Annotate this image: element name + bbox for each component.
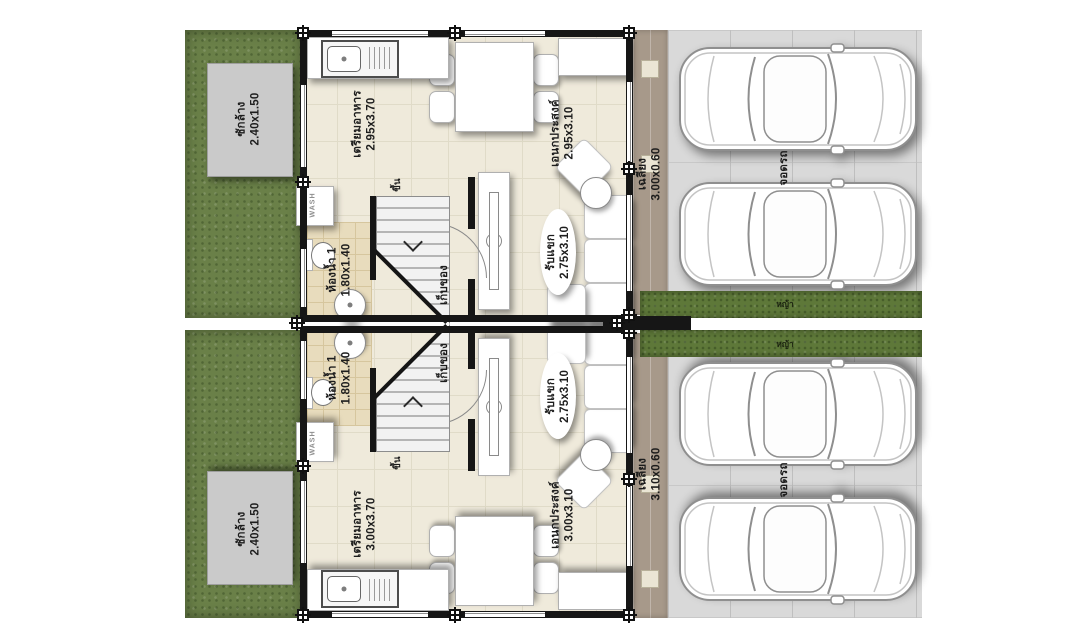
unit-upper-labels: ซักล้าง 2.40x1.50 เตรียมอาหาร 2.95x3.70 … xyxy=(180,27,924,323)
label-kitchen: เตรียมอาหาร 3.00x3.70 xyxy=(351,490,380,557)
label-living: รับแขก 2.75x3.10 xyxy=(544,226,573,279)
column-marker xyxy=(291,317,303,329)
label-grass-strip: หญ้า xyxy=(776,297,794,311)
unit-upper: ซักล้าง 2.40x1.50 เตรียมอาหาร 2.95x3.70 … xyxy=(180,27,924,323)
label-parking: จอดรถ xyxy=(777,462,791,497)
floor-plan: ซักล้าง 2.40x1.50 เตรียมอาหาร 2.95x3.70 … xyxy=(0,0,1080,640)
label-bathroom: ห้องน้ำ 1 1.80x1.40 xyxy=(326,352,355,405)
column-marker xyxy=(449,27,461,39)
label-stairs-up: ขึ้น xyxy=(392,178,404,191)
label-bathroom: ห้องน้ำ 1 1.80x1.40 xyxy=(326,244,355,297)
label-terrace: เฉลียง 3.10x0.60 xyxy=(636,448,665,501)
label-stairs-up: ขึ้น xyxy=(392,456,404,469)
unit-lower-labels: ซักล้าง 2.40x1.50 เตรียมอาหาร 3.00x3.70 … xyxy=(180,325,924,621)
label-storage: เก็บของ xyxy=(437,265,451,305)
label-living-oval: รับแขก 2.75x3.10 xyxy=(540,209,576,295)
label-multipurpose: เอนกประสงค์ 2.95x3.10 xyxy=(549,99,578,167)
column-marker xyxy=(623,309,635,321)
column-marker xyxy=(297,176,309,188)
label-washer: WASH xyxy=(310,431,319,456)
label-living: รับแขก 2.75x3.10 xyxy=(544,370,573,423)
label-parking: จอดรถ xyxy=(777,150,791,185)
column-marker xyxy=(611,317,623,329)
label-multipurpose: เอนกประสงค์ 3.00x3.10 xyxy=(549,481,578,549)
label-kitchen: เตรียมอาหาร 2.95x3.70 xyxy=(351,90,380,157)
label-washer: WASH xyxy=(310,193,319,218)
column-marker xyxy=(623,163,635,175)
label-grass-strip: หญ้า xyxy=(776,337,794,351)
unit-lower: ซักล้าง 2.40x1.50 เตรียมอาหาร 3.00x3.70 … xyxy=(180,325,924,621)
label-living-oval: รับแขก 2.75x3.10 xyxy=(540,353,576,439)
label-laundry: ซักล้าง 2.40x1.50 xyxy=(235,503,264,556)
label-laundry: ซักล้าง 2.40x1.50 xyxy=(235,93,264,146)
column-marker xyxy=(623,27,635,39)
column-marker xyxy=(297,27,309,39)
label-terrace: เฉลียง 3.00x0.60 xyxy=(636,148,665,201)
label-storage: เก็บของ xyxy=(437,343,451,383)
